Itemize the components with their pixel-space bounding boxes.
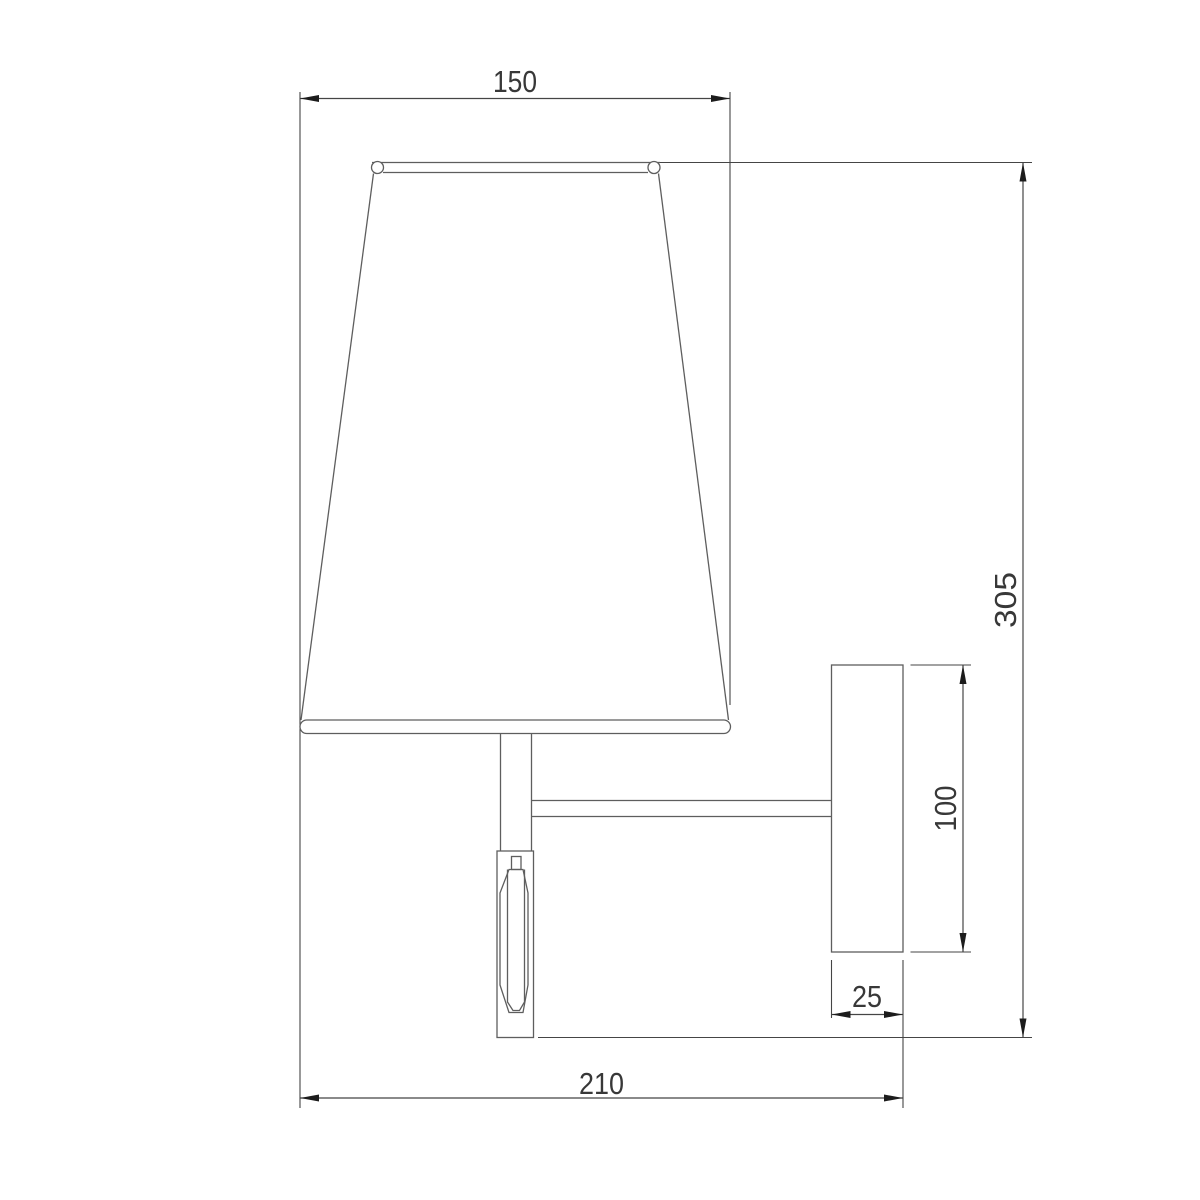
dimension-label-25: 25 [852,979,882,1014]
arrowhead-305-top [1020,163,1027,182]
arrowhead-305-bottom [1020,1019,1027,1038]
dimension-150: 150 [300,64,730,102]
dimension-label-210: 210 [579,1066,624,1101]
shade-rail-ball-left [372,162,384,174]
technical-drawing-canvas: 150 305 100 25 210 [0,0,1200,1200]
arrowhead-150-right [711,95,730,102]
arrowhead-150-left [300,95,319,102]
arrowhead-25-right [884,1011,903,1018]
dimension-100: 100 [928,665,967,952]
dimension-305: 305 [988,163,1027,1038]
lamp-geometry [300,162,903,1038]
shade-side-left [301,174,374,721]
extension-lines [300,92,1032,1108]
arrowhead-100-top [960,665,967,684]
wall-sconce-dimension-drawing: 150 305 100 25 210 [0,0,1200,1200]
shade-rail-ball-right [648,162,660,174]
arrowhead-210-right [884,1095,903,1102]
dimension-label-305: 305 [988,572,1023,628]
dimension-label-100: 100 [928,786,963,832]
shade-bottom-rim [300,720,731,734]
shade-side-right [659,174,729,721]
arrowhead-25-left [832,1011,851,1018]
arrowhead-210-left [300,1095,319,1102]
dimension-210: 210 [300,1066,903,1102]
dimension-label-150: 150 [493,64,537,99]
wall-backplate [832,665,904,952]
dimension-25: 25 [832,979,904,1018]
arrowhead-100-bottom [960,933,967,952]
